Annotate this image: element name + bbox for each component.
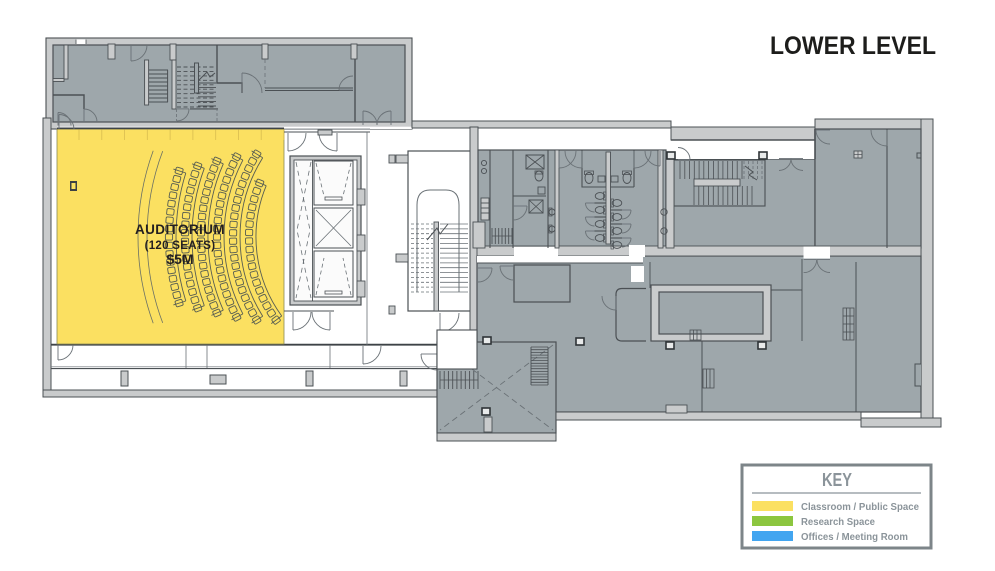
svg-text:Classroom / Public Space: Classroom / Public Space [801,501,919,513]
svg-text:LOWER LEVEL: LOWER LEVEL [770,32,936,60]
svg-text:KEY: KEY [822,470,852,490]
svg-text:$5M: $5M [166,251,193,267]
svg-text:Offices / Meeting Room: Offices / Meeting Room [801,531,908,543]
svg-text:Research Space: Research Space [801,516,875,528]
svg-text:AUDITORIUM: AUDITORIUM [135,222,225,237]
